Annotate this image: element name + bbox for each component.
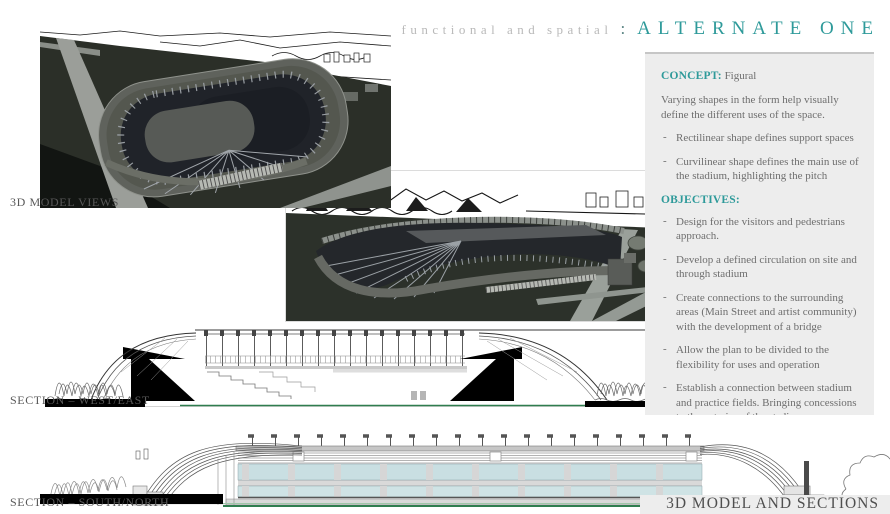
objective-item: - Design for the visitors and pedestrian…: [661, 215, 861, 244]
objective-text: Establish a connection between stadium a…: [676, 381, 861, 415]
caption-model-views: 3D MODEL VIEWS: [10, 195, 119, 210]
bullet-dash: -: [661, 215, 676, 244]
objective-text: Allow the plan to be divided to the flex…: [676, 343, 861, 372]
objective-item: - Allow the plan to be divided to the fl…: [661, 343, 861, 372]
presentation-board: functional and spatial : ALTERNATE ONE: [0, 0, 890, 514]
concept-intro: Varying shapes in the form help visually…: [661, 93, 861, 122]
objective-text: Create connections to the surrounding ar…: [676, 291, 861, 335]
concept-point-text: Rectilinear shape defines support spaces: [676, 131, 861, 146]
sidebar-panel: CONCEPT: Figural Varying shapes in the f…: [645, 52, 874, 415]
objectives-label: OBJECTIVES:: [661, 194, 861, 206]
footer-title: 3D MODEL AND SECTIONS: [666, 495, 879, 513]
stadium-render-aerial-view: [40, 26, 391, 208]
footer-band: 3D MODEL AND SECTIONS: [640, 495, 890, 514]
caption-section-west-east: SECTION – WEST/EAST: [10, 393, 150, 408]
concept-point-text: Curvilinear shape defines the main use o…: [676, 155, 861, 184]
bullet-dash: -: [661, 381, 676, 415]
objective-item: - Develop a defined circulation on site …: [661, 253, 861, 282]
header-subtitle: functional and spatial: [402, 22, 613, 37]
bullet-dash: -: [661, 291, 676, 335]
header-separator: :: [620, 19, 629, 38]
concept-point: - Curvilinear shape defines the main use…: [661, 155, 861, 184]
page-title: ALTERNATE ONE: [637, 18, 880, 39]
concept-point: - Rectilinear shape defines support spac…: [661, 131, 861, 146]
concept-value: Figural: [725, 70, 757, 82]
header: functional and spatial : ALTERNATE ONE: [402, 18, 880, 40]
objective-item: - Create connections to the surrounding …: [661, 291, 861, 335]
objective-item: - Establish a connection between stadium…: [661, 381, 861, 415]
bullet-dash: -: [661, 343, 676, 372]
bullet-dash: -: [661, 155, 676, 184]
bullet-dash: -: [661, 131, 676, 146]
caption-section-south-north: SECTION – SOUTH/NORTH: [10, 495, 169, 510]
objective-text: Design for the visitors and pedestrians …: [676, 215, 861, 244]
concept-label: CONCEPT:: [661, 70, 722, 82]
concept-row: CONCEPT: Figural: [661, 69, 861, 84]
objective-text: Develop a defined circulation on site an…: [676, 253, 861, 282]
bullet-dash: -: [661, 253, 676, 282]
